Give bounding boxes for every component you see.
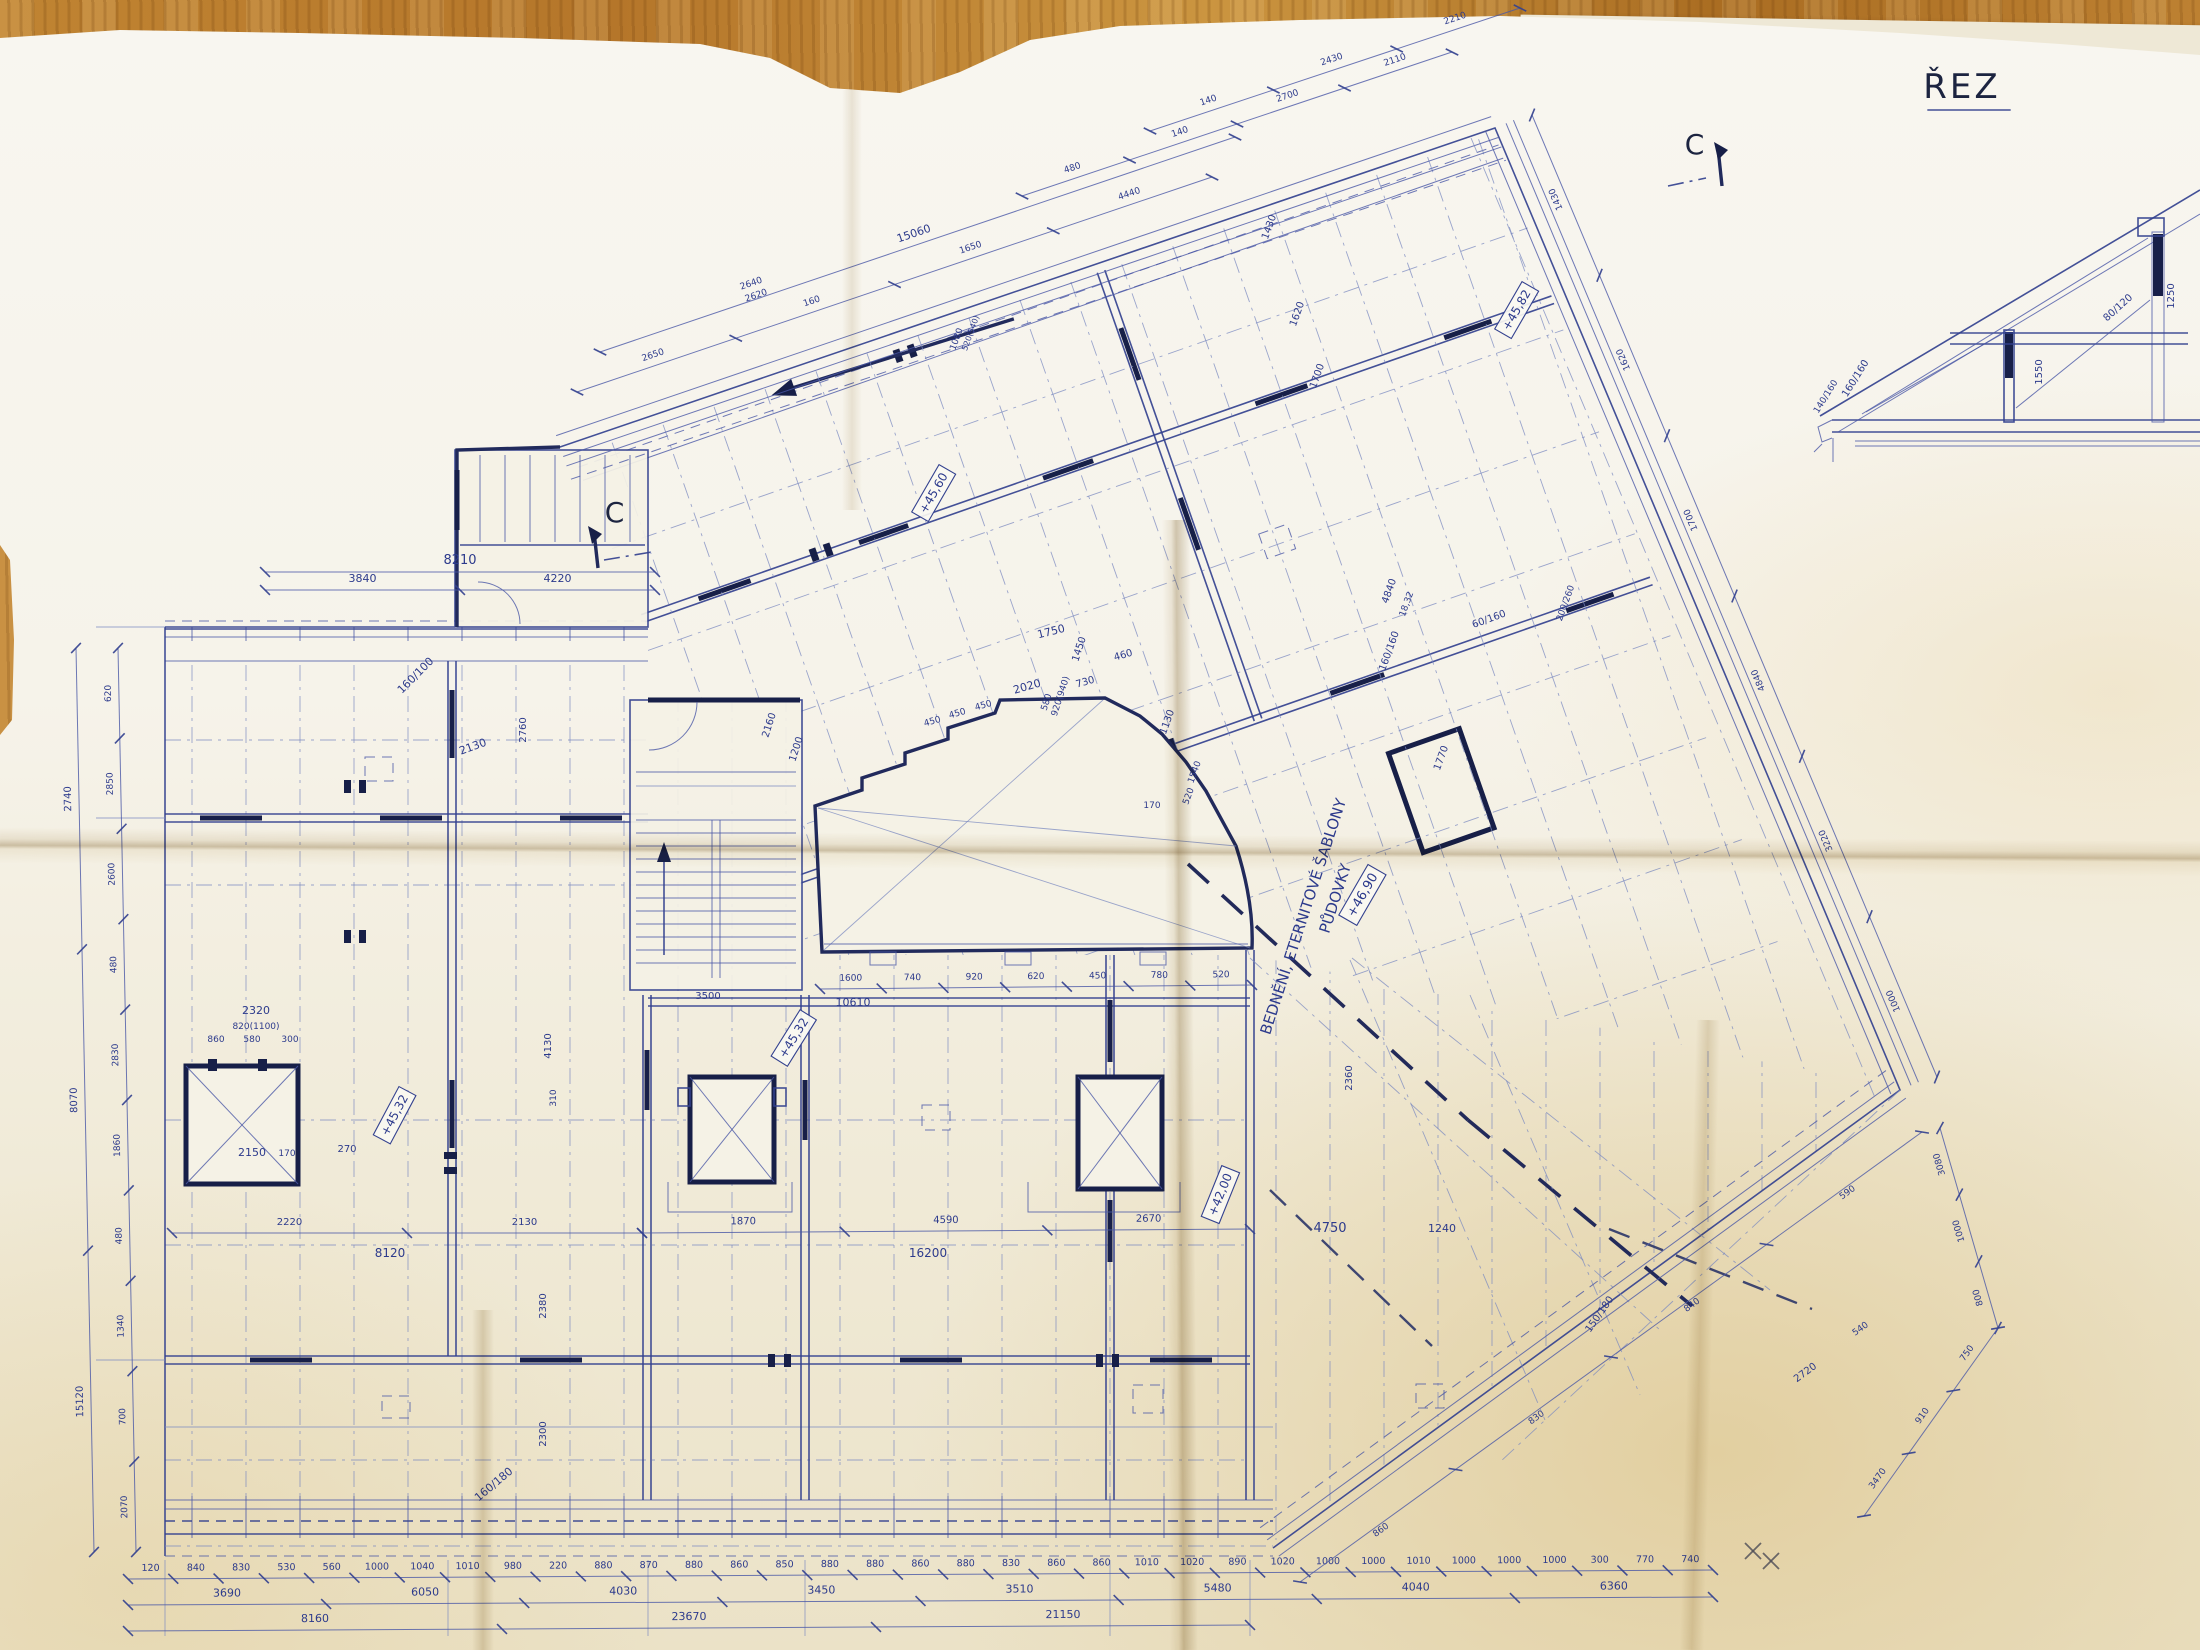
svg-text:1000: 1000 xyxy=(1542,1555,1566,1566)
svg-text:1750: 1750 xyxy=(1036,622,1066,641)
svg-text:770: 770 xyxy=(1636,1554,1654,1565)
annex-block xyxy=(457,447,648,627)
svg-text:2600: 2600 xyxy=(107,862,117,885)
svg-text:8210: 8210 xyxy=(443,553,476,568)
svg-text:80/120: 80/120 xyxy=(2102,292,2136,324)
svg-text:2670: 2670 xyxy=(1136,1214,1162,1225)
svg-text:2130: 2130 xyxy=(512,1217,537,1228)
svg-text:170: 170 xyxy=(1143,801,1160,811)
svg-text:C: C xyxy=(1685,128,1708,161)
svg-text:3840: 3840 xyxy=(349,572,377,585)
svg-text:270: 270 xyxy=(337,1144,356,1155)
svg-text:23670: 23670 xyxy=(671,1610,706,1623)
svg-text:870: 870 xyxy=(640,1560,658,1571)
strut xyxy=(2016,300,2150,408)
svg-text:3080: 3080 xyxy=(1932,1151,1948,1176)
svg-text:1130: 1130 xyxy=(1158,708,1177,736)
svg-text:310: 310 xyxy=(549,1089,559,1106)
svg-text:730: 730 xyxy=(1075,675,1096,691)
svg-text:16200: 16200 xyxy=(909,1246,947,1260)
svg-text:4440: 4440 xyxy=(1117,186,1142,203)
svg-text:160/160: 160/160 xyxy=(1840,358,1871,399)
svg-text:1340: 1340 xyxy=(116,1314,126,1337)
svg-text:2300: 2300 xyxy=(538,1421,549,1446)
svg-text:4590: 4590 xyxy=(933,1215,959,1226)
svg-text:15120: 15120 xyxy=(75,1386,87,1418)
svg-text:140: 140 xyxy=(1199,93,1219,108)
svg-text:620: 620 xyxy=(1027,972,1045,982)
blueprint-photo: ŘEZ xyxy=(0,0,2200,1650)
svg-text:1040: 1040 xyxy=(410,1561,434,1572)
svg-text:1550: 1550 xyxy=(2034,359,2045,384)
svg-text:450: 450 xyxy=(1089,971,1107,981)
svg-text:1240: 1240 xyxy=(1428,1222,1456,1235)
svg-text:2210: 2210 xyxy=(1443,11,1468,28)
blueprint-drawing: 1208408305305601000104010109802208808708… xyxy=(0,0,2200,1650)
svg-text:4220: 4220 xyxy=(544,572,572,585)
svg-text:750: 750 xyxy=(1958,1343,1976,1363)
svg-text:1650: 1650 xyxy=(958,240,983,257)
svg-text:700: 700 xyxy=(118,1408,128,1426)
svg-text:220: 220 xyxy=(549,1561,567,1572)
rafter-grid-corner xyxy=(1276,958,1816,1540)
svg-text:300: 300 xyxy=(281,1035,298,1045)
svg-text:1020: 1020 xyxy=(1271,1556,1295,1567)
svg-text:2380: 2380 xyxy=(538,1293,549,1318)
svg-text:3450: 3450 xyxy=(807,1583,835,1596)
svg-text:2150: 2150 xyxy=(238,1146,266,1159)
svg-text:740: 740 xyxy=(904,973,922,983)
svg-text:830: 830 xyxy=(1527,1409,1547,1427)
courtyard-void xyxy=(815,698,1252,965)
svg-text:1000: 1000 xyxy=(1452,1555,1476,1566)
svg-text:1010: 1010 xyxy=(1406,1556,1430,1567)
svg-text:1000: 1000 xyxy=(1361,1556,1385,1567)
svg-text:800: 800 xyxy=(1971,1288,1985,1308)
svg-text:1250: 1250 xyxy=(2166,283,2177,308)
svg-text:21150: 21150 xyxy=(1045,1608,1080,1621)
svg-text:590: 590 xyxy=(1838,1184,1858,1202)
svg-text:2110: 2110 xyxy=(1383,52,1408,69)
chimney xyxy=(668,1077,792,1212)
purlin xyxy=(2138,218,2164,236)
svg-text:160/180: 160/180 xyxy=(472,1465,515,1504)
svg-text:2850: 2850 xyxy=(105,772,115,795)
svg-text:C: C xyxy=(605,496,628,529)
svg-text:4030: 4030 xyxy=(609,1584,637,1597)
svg-text:860: 860 xyxy=(207,1035,224,1045)
svg-text:3690: 3690 xyxy=(213,1586,241,1599)
svg-text:910: 910 xyxy=(1914,1406,1932,1426)
svg-text:450: 450 xyxy=(948,707,968,721)
svg-text:2830: 2830 xyxy=(111,1043,121,1066)
svg-text:920: 920 xyxy=(966,972,984,982)
svg-text:5480: 5480 xyxy=(1204,1581,1232,1594)
svg-text:1620: 1620 xyxy=(1288,300,1307,328)
svg-text:460: 460 xyxy=(1113,648,1134,664)
svg-text:840: 840 xyxy=(187,1563,205,1574)
svg-text:980: 980 xyxy=(504,1561,522,1572)
svg-text:1010: 1010 xyxy=(1135,1557,1159,1568)
svg-text:830: 830 xyxy=(1002,1558,1020,1569)
svg-text:1870: 1870 xyxy=(730,1216,756,1227)
svg-text:780: 780 xyxy=(1151,971,1169,981)
svg-text:4130: 4130 xyxy=(543,1033,554,1058)
svg-text:2700: 2700 xyxy=(1275,88,1300,105)
svg-text:860: 860 xyxy=(911,1558,929,1569)
svg-text:1860: 1860 xyxy=(113,1134,123,1157)
svg-text:10610: 10610 xyxy=(836,996,871,1009)
svg-text:8160: 8160 xyxy=(301,1612,329,1625)
stairwell xyxy=(630,700,802,990)
svg-text:880: 880 xyxy=(594,1560,612,1571)
svg-text:1450: 1450 xyxy=(1070,635,1088,663)
svg-text:860: 860 xyxy=(1371,1521,1391,1539)
svg-text:170: 170 xyxy=(278,1149,295,1159)
svg-text:2650: 2650 xyxy=(641,347,666,364)
svg-text:140: 140 xyxy=(1170,125,1190,140)
svg-text:18,32: 18,32 xyxy=(1398,591,1416,619)
svg-text:6050: 6050 xyxy=(411,1585,439,1598)
svg-text:1600: 1600 xyxy=(839,974,862,984)
svg-text:60/160: 60/160 xyxy=(1471,608,1508,630)
svg-text:860: 860 xyxy=(1092,1557,1110,1568)
light-shaft xyxy=(186,1059,298,1184)
svg-text:2430: 2430 xyxy=(1319,52,1344,69)
svg-text:2070: 2070 xyxy=(120,1495,130,1518)
svg-text:450: 450 xyxy=(923,715,943,729)
svg-text:880: 880 xyxy=(821,1559,839,1570)
svg-text:890: 890 xyxy=(1228,1557,1246,1568)
svg-text:2020: 2020 xyxy=(1012,677,1042,697)
svg-text:580: 580 xyxy=(243,1035,260,1045)
svg-text:1000: 1000 xyxy=(1951,1218,1967,1243)
svg-text:560: 560 xyxy=(323,1562,341,1573)
svg-text:540: 540 xyxy=(1851,1320,1871,1338)
svg-text:740: 740 xyxy=(1681,1554,1699,1565)
pencil-marks xyxy=(1745,1543,1779,1569)
svg-text:820(1100): 820(1100) xyxy=(232,1022,279,1032)
svg-text:850: 850 xyxy=(775,1559,793,1570)
chimneys-and-shafts xyxy=(186,1059,1180,1212)
svg-text:120: 120 xyxy=(141,1563,159,1574)
svg-text:2740: 2740 xyxy=(63,786,74,812)
svg-text:860: 860 xyxy=(1047,1558,1065,1569)
svg-text:860: 860 xyxy=(730,1559,748,1570)
svg-text:4750: 4750 xyxy=(1313,1221,1346,1236)
svg-text:520: 520 xyxy=(1212,970,1230,980)
svg-text:880: 880 xyxy=(957,1558,975,1569)
brace xyxy=(1862,238,2148,414)
svg-text:480: 480 xyxy=(109,956,119,974)
svg-text:1000: 1000 xyxy=(1497,1555,1521,1566)
svg-text:8120: 8120 xyxy=(375,1246,406,1260)
svg-text:1540: 1540 xyxy=(1187,760,1204,785)
svg-text:140/160: 140/160 xyxy=(1812,378,1840,415)
svg-text:620: 620 xyxy=(104,684,114,702)
svg-text:880: 880 xyxy=(685,1560,703,1571)
svg-text:2720: 2720 xyxy=(1792,1361,1819,1385)
roof-hatch-dashed xyxy=(1259,524,1296,558)
svg-text:300: 300 xyxy=(1591,1555,1609,1566)
svg-text:530: 530 xyxy=(277,1562,295,1573)
svg-text:6360: 6360 xyxy=(1600,1579,1628,1592)
svg-text:4840: 4840 xyxy=(1380,577,1399,605)
strut xyxy=(1866,334,2002,412)
svg-text:160: 160 xyxy=(802,294,822,309)
eave-detail xyxy=(1814,420,1833,462)
svg-text:2220: 2220 xyxy=(277,1217,302,1228)
chimney xyxy=(1028,1077,1180,1212)
svg-text:1020: 1020 xyxy=(1180,1557,1204,1568)
svg-text:8070: 8070 xyxy=(69,1087,80,1113)
truss-section-detail xyxy=(1814,190,2200,462)
svg-text:2360: 2360 xyxy=(1344,1065,1355,1090)
svg-text:3510: 3510 xyxy=(1005,1582,1033,1595)
rafter xyxy=(1820,190,2200,416)
svg-text:830: 830 xyxy=(232,1562,250,1573)
svg-text:3470: 3470 xyxy=(1867,1466,1889,1491)
svg-text:3500: 3500 xyxy=(695,991,720,1002)
svg-text:480: 480 xyxy=(115,1227,125,1245)
svg-text:480: 480 xyxy=(1063,161,1083,176)
svg-text:450: 450 xyxy=(974,699,994,713)
svg-text:1010: 1010 xyxy=(455,1561,479,1572)
svg-text:2320: 2320 xyxy=(242,1004,270,1017)
svg-text:ŘEZ: ŘEZ xyxy=(1923,66,2000,107)
svg-text:880: 880 xyxy=(866,1559,884,1570)
svg-text:1000: 1000 xyxy=(365,1562,389,1573)
svg-text:4040: 4040 xyxy=(1402,1580,1430,1593)
svg-text:2760: 2760 xyxy=(518,717,529,742)
